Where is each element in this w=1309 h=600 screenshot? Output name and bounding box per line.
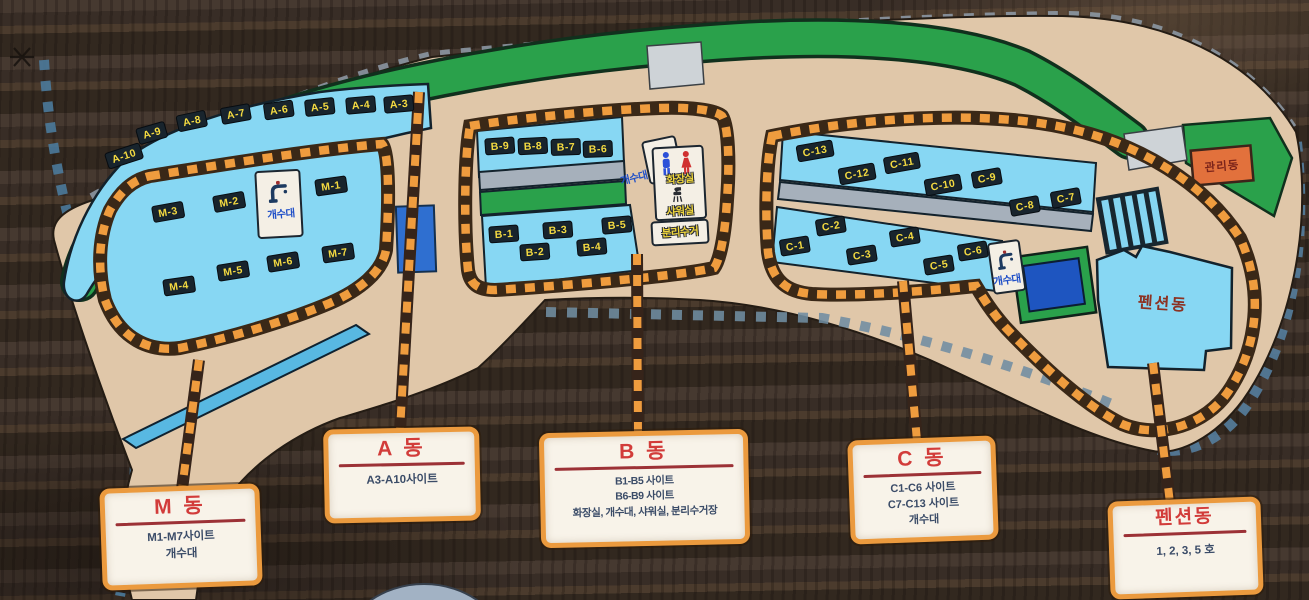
legend-title: C 동 bbox=[853, 445, 992, 473]
site-chip-c-8: C-8 bbox=[1009, 195, 1042, 217]
legend-line: 1, 2, 3, 5 호 bbox=[1114, 540, 1258, 562]
legend-line: 개수대 bbox=[855, 511, 993, 532]
site-chip-c-1: C-1 bbox=[779, 235, 812, 257]
site-chip-a-10: A-10 bbox=[104, 142, 144, 170]
site-chip-m-4: M-4 bbox=[162, 275, 196, 296]
site-chip-a-3: A-3 bbox=[383, 94, 415, 114]
facility-label-개수대: 개수대 bbox=[619, 167, 649, 188]
facility-label-샤워실: 샤워실 bbox=[666, 203, 694, 220]
site-chip-b-1: B-1 bbox=[488, 224, 520, 243]
legend-title: A 동 bbox=[328, 435, 474, 461]
legend-underline bbox=[1123, 530, 1246, 537]
legend-underline bbox=[339, 462, 465, 468]
site-chip-c-9: C-9 bbox=[971, 167, 1004, 189]
site-chip-c-3: C-3 bbox=[846, 244, 879, 266]
site-chip-a-7: A-7 bbox=[220, 103, 253, 125]
facility-label-화장실: 화장실 bbox=[666, 171, 694, 188]
site-chip-a-4: A-4 bbox=[345, 95, 377, 115]
site-chip-b-3: B-3 bbox=[542, 220, 574, 239]
legend-title: 펜션동 bbox=[1113, 506, 1257, 532]
site-chip-c-5: C-5 bbox=[923, 254, 956, 276]
legend-line: A3-A10사이트 bbox=[329, 471, 475, 491]
site-chip-c-12: C-12 bbox=[837, 162, 876, 185]
facility-label-분리수거: 분리수거 bbox=[661, 223, 699, 241]
site-chip-a-9: A-9 bbox=[135, 121, 169, 146]
site-chip-m-3: M-3 bbox=[151, 201, 185, 223]
legend-underline bbox=[863, 471, 981, 478]
site-chip-c-4: C-4 bbox=[889, 226, 922, 248]
site-chip-m-5: M-5 bbox=[216, 260, 250, 282]
facility-label-펜션동: 펜션동 bbox=[1137, 288, 1189, 315]
facility-label-개수대: 개수대 bbox=[267, 205, 296, 222]
site-chip-b-6: B-6 bbox=[583, 140, 614, 158]
facility-label-관리동: 관리동 bbox=[1204, 157, 1240, 176]
site-chip-b-8: B-8 bbox=[517, 137, 548, 156]
site-chip-c-6: C-6 bbox=[957, 240, 990, 262]
legend-box-c: C 동 C1-C6 사이트 C7-C13 사이트 개수대 bbox=[847, 435, 999, 544]
legend-underline bbox=[115, 519, 245, 527]
legend-title: M 동 bbox=[105, 492, 256, 520]
legend-line: 화장실, 개수대, 샤워실, 분리수거장 bbox=[545, 502, 744, 521]
site-chip-m-1: M-1 bbox=[314, 175, 348, 196]
site-chip-b-7: B-7 bbox=[551, 138, 582, 156]
site-chip-c-13: C-13 bbox=[795, 139, 834, 162]
site-chip-c-7: C-7 bbox=[1050, 187, 1083, 209]
site-chip-m-2: M-2 bbox=[212, 191, 246, 213]
site-chip-b-9: B-9 bbox=[484, 136, 516, 155]
site-chip-b-5: B-5 bbox=[601, 215, 633, 235]
legend-box-a: A 동 A3-A10사이트 bbox=[323, 426, 481, 523]
site-chip-c-2: C-2 bbox=[815, 215, 848, 237]
site-chip-c-11: C-11 bbox=[883, 151, 922, 174]
legend-box-b: B 동 B1-B5 사이트 B6-B9 사이트 화장실, 개수대, 샤워실, 분… bbox=[539, 429, 750, 548]
legend-box-pension: 펜션동 1, 2, 3, 5 호 bbox=[1107, 496, 1263, 599]
legend-title: B 동 bbox=[544, 438, 743, 465]
site-chip-b-2: B-2 bbox=[519, 242, 551, 261]
site-chip-a-8: A-8 bbox=[175, 109, 208, 132]
legend-underline bbox=[555, 464, 734, 471]
site-chip-a-5: A-5 bbox=[304, 97, 336, 117]
campground-map-board: A-10A-9A-8A-7A-6A-5A-4A-3M-3M-2M-1M-4M-5… bbox=[0, 0, 1309, 600]
site-chip-b-4: B-4 bbox=[576, 237, 608, 257]
site-chip-m-7: M-7 bbox=[321, 242, 355, 263]
site-chip-a-6: A-6 bbox=[263, 99, 296, 120]
site-chip-c-10: C-10 bbox=[923, 173, 962, 196]
facility-label-개수대: 개수대 bbox=[992, 271, 1021, 290]
legend-box-m: M 동 M1-M7사이트 개수대 bbox=[99, 483, 262, 591]
site-chip-m-6: M-6 bbox=[266, 251, 300, 273]
